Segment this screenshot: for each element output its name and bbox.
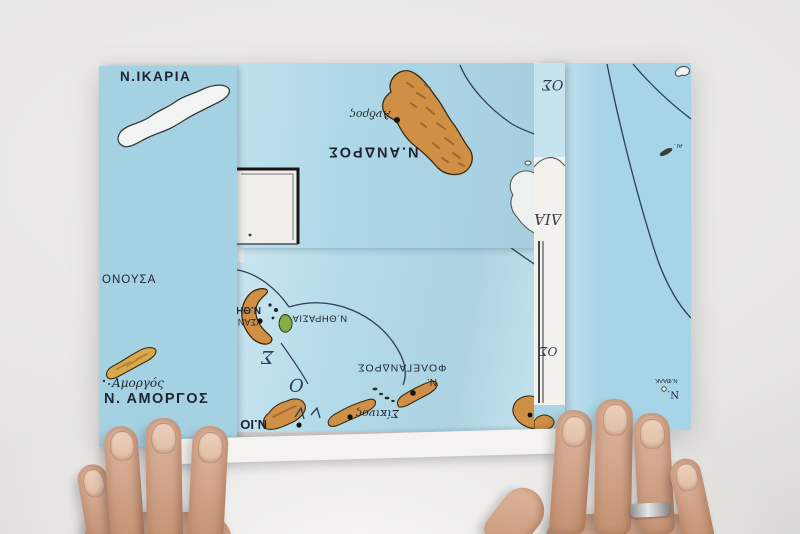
panel-band-art (237, 247, 545, 432)
ios-town-dot (296, 422, 301, 427)
islet-agios (659, 146, 674, 157)
caldera-islet (268, 303, 271, 306)
ferry-route (607, 64, 691, 318)
inset-dot (249, 234, 252, 237)
island-ikaria (118, 85, 229, 147)
sikinos-town-dot (347, 414, 352, 419)
folegandros-town-dot (410, 390, 416, 396)
left-index-finger (187, 425, 229, 534)
map-panel-middle-top: Άνδρος Ν.ΑΝΔΡΟΣ (237, 63, 537, 248)
map-fold-strip: ΟΣ ΔΙΑ ΟΣ (534, 63, 565, 431)
fingernail (197, 431, 224, 463)
fold-strip-art (534, 63, 565, 431)
label-donousa: ΟΝΟΥΣΑ (102, 275, 156, 287)
label-sea-fragment-dia: ΔΙΑ (534, 211, 562, 226)
panel-right-art (564, 63, 691, 430)
silver-ring (630, 502, 671, 518)
photo-scene: Ν.ΙΚΑΡΙΑ ΟΝΟΥΣΑ Αμοργός Ν. ΑΜΟΡΓΟΣ Άνδρο… (0, 0, 800, 534)
island-tinos-outline (510, 171, 537, 234)
caldera-islet (272, 317, 275, 320)
label-santorini-fragment: (ΣΑΝ (237, 317, 259, 326)
inset-box-fragment (237, 247, 244, 262)
label-sikinos-town: Σίκινος (356, 408, 399, 419)
label-sea-letter-sigma: Σ (261, 347, 274, 365)
map-panel-middle-band: Ν.ΘΗ (ΣΑΝ Ν.ΘΗΡΑΣΙΑ ΦΟΛΕΓΑΝΔΡΟΣ Ν. Σίκιν… (237, 247, 545, 432)
ferry-route (460, 65, 537, 135)
label-sea-fragment-top: ΟΣ (542, 77, 563, 91)
fingernail (109, 430, 135, 462)
label-n-fragment: Ν. (667, 388, 679, 398)
island-nea-kameni (279, 315, 292, 333)
label-folegandros-prefix: Ν. (427, 376, 437, 386)
fingernail (639, 418, 666, 449)
label-agios-islet: ΑΓ. (674, 142, 682, 148)
islet-dot (108, 383, 110, 385)
fingernail (81, 468, 107, 499)
islet-falkonera (662, 387, 666, 391)
label-thirasia: Ν.ΘΗΡΑΣΙΑ (292, 313, 347, 323)
map-panel-right: ΑΓ. Ν.ΦΑΛΚ Ν. (564, 63, 691, 430)
label-andros-town: Άνδρος (342, 109, 398, 120)
anafi-town-dot (528, 413, 533, 418)
label-amorgos: Ν. ΑΜΟΡΓΟΣ (104, 392, 209, 407)
islet-chain (385, 397, 390, 400)
label-andros: Ν.ΑΝΔΡΟΣ (327, 144, 419, 159)
label-sea-fragment-mid: ΟΣ (539, 345, 557, 357)
label-folegandros: ΦΟΛΕΓΑΝΔΡΟΣ (357, 362, 446, 373)
islet-chain (373, 388, 378, 391)
left-middle-finger (145, 418, 183, 534)
inset-box (237, 168, 299, 244)
islet-chain (379, 393, 383, 395)
islet-outline (525, 161, 531, 165)
fingernail (561, 415, 588, 448)
fingernail (673, 461, 700, 493)
label-thira-fragment: Ν.ΘΗ (237, 304, 261, 314)
fingernail (151, 423, 177, 454)
caldera-islet (274, 308, 278, 312)
right-middle-finger (594, 399, 633, 534)
label-falkonera: Ν.ΦΑΛΚ (655, 377, 678, 383)
label-amorgos-town: Αμοργός (112, 377, 164, 389)
label-ios-fragment: Ν.ΙΟ (237, 418, 267, 431)
label-sea-letter-omicron: Ο (289, 375, 304, 393)
route-tick (311, 408, 320, 418)
fingernail (603, 404, 629, 436)
islet-chain (391, 400, 395, 402)
map-panel-left: Ν.ΙΚΑΡΙΑ ΟΝΟΥΣΑ Αμοργός Ν. ΑΜΟΡΓΟΣ (99, 66, 237, 447)
islet-dot (103, 380, 105, 382)
island-fragment-top-right (675, 67, 689, 77)
label-ikaria: Ν.ΙΚΑΡΙΑ (120, 70, 191, 84)
